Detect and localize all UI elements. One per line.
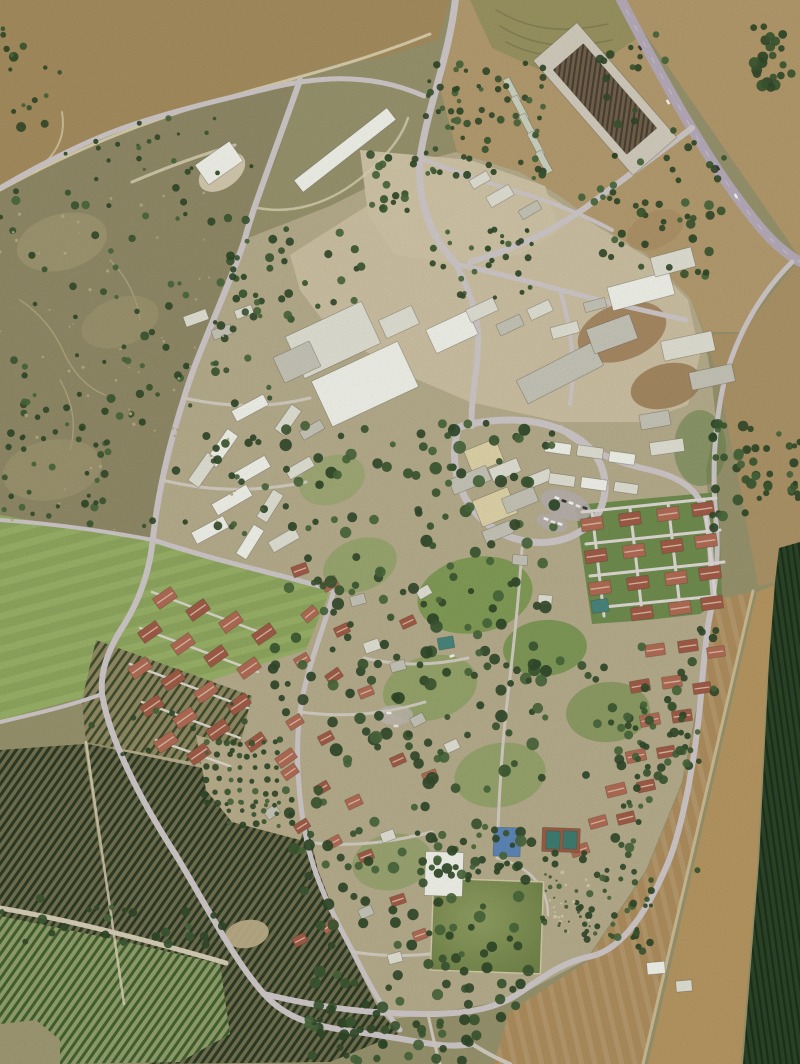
photo-grain-overlay (0, 0, 800, 1064)
aerial-photo (0, 0, 800, 1064)
screenshot-canvas (0, 0, 800, 1064)
